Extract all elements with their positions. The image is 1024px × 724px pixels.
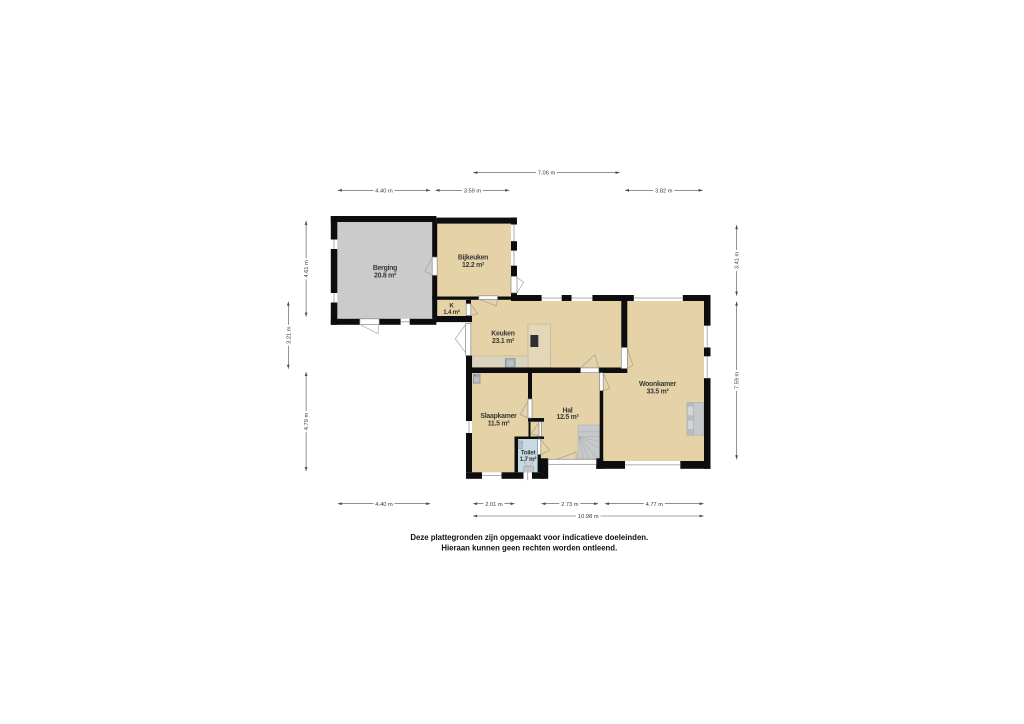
svg-text:4.77 m: 4.77 m (646, 502, 664, 508)
svg-text:7.59 m: 7.59 m (735, 371, 741, 389)
svg-text:12.2 m²: 12.2 m² (462, 262, 485, 269)
svg-text:23.1 m²: 23.1 m² (492, 338, 515, 345)
svg-text:20.8 m²: 20.8 m² (374, 273, 397, 280)
svg-text:2.01 m: 2.01 m (485, 502, 503, 508)
svg-text:3.21 m: 3.21 m (286, 326, 292, 344)
svg-text:Keuken: Keuken (491, 331, 514, 338)
svg-text:1.4 m²: 1.4 m² (443, 309, 460, 316)
svg-text:Woonkamer: Woonkamer (639, 381, 677, 388)
svg-text:10.98 m: 10.98 m (578, 514, 599, 520)
svg-text:Slaapkamer: Slaapkamer (480, 413, 517, 420)
svg-text:3.59 m: 3.59 m (464, 188, 482, 194)
svg-text:4.40 m: 4.40 m (375, 502, 393, 508)
svg-text:12.5 m²: 12.5 m² (557, 414, 580, 421)
svg-text:33.5 m²: 33.5 m² (647, 389, 670, 396)
svg-text:3.82 m: 3.82 m (655, 188, 673, 194)
svg-text:Hieraan kunnen geen rechten wo: Hieraan kunnen geen rechten worden ontle… (441, 543, 617, 552)
svg-text:7.06 m: 7.06 m (538, 171, 556, 177)
svg-text:4.40 m: 4.40 m (375, 188, 393, 194)
svg-text:Bijkeuken: Bijkeuken (458, 255, 488, 262)
svg-text:4.61 m: 4.61 m (304, 260, 310, 278)
svg-text:Deze plattegronden zijn opgema: Deze plattegronden zijn opgemaakt voor i… (410, 533, 648, 542)
svg-text:11.5 m²: 11.5 m² (488, 421, 511, 428)
svg-text:2.73 m: 2.73 m (561, 502, 579, 508)
svg-text:Berging: Berging (373, 265, 397, 272)
svg-text:3.41 m: 3.41 m (735, 251, 741, 269)
svg-text:4.79 m: 4.79 m (304, 413, 310, 431)
svg-text:1.7 m²: 1.7 m² (520, 456, 537, 463)
